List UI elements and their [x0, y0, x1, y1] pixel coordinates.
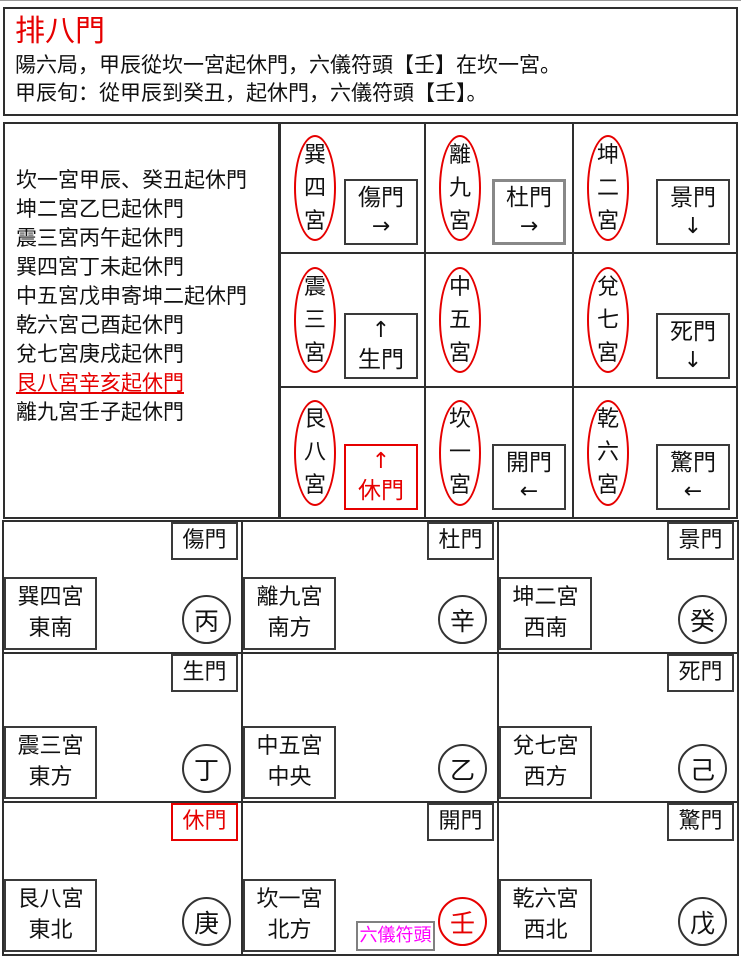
note-line: 乾六宮己酉起休門 — [16, 311, 278, 340]
palace-name: 巽四宮 — [6, 582, 95, 613]
palace-oval: 中五宮 — [439, 267, 481, 373]
palace-tag: 離九宮 南方 — [243, 577, 336, 650]
palace-oval: 乾六宮 — [587, 400, 629, 506]
direction-label: 東方 — [6, 762, 95, 793]
palace-oval: 坤二宮 — [587, 135, 629, 241]
arrow-left-icon: ← — [684, 478, 702, 506]
gate-name: 傷門 — [358, 183, 404, 213]
note-line: 中五宮戊申寄坤二起休門 — [16, 282, 278, 311]
palace-name: 乾六宮 — [501, 884, 590, 915]
palace-name: 艮八宮 — [6, 884, 95, 915]
gate-chart-cell-li9: 離九宮 杜門 → — [426, 124, 574, 254]
stem-circle: 癸 — [678, 595, 727, 644]
direction-label: 西南 — [501, 613, 590, 644]
palace-cell-xun4: 傷門 巽四宮 東南 丙 — [4, 522, 243, 654]
gate-tag: 傷門 — [171, 522, 238, 560]
gate-name: 開門 — [506, 448, 552, 478]
palace-oval: 坎一宮 — [439, 400, 481, 506]
gate-rotation-chart: 巽四宮 傷門 → 離九宮 杜門 → 坤二宮 景門 ↓ — [279, 122, 738, 519]
palace-name: 震三宮 — [303, 271, 327, 370]
page: 排八門 陽六局，甲辰從坎一宮起休門，六儀符頭【壬】在坎一宮。 甲辰旬：從甲辰到癸… — [0, 0, 741, 957]
gate-tag-highlighted: 休門 — [171, 803, 238, 841]
direction-label: 東北 — [6, 915, 95, 946]
palace-name: 兌七宮 — [501, 731, 590, 762]
note-line: 震三宮丙午起休門 — [16, 224, 278, 253]
gate-name: 杜門 — [506, 183, 552, 213]
palace-cell-kan1: 開門 坎一宮 北方 六儀符頭 壬 — [243, 803, 499, 954]
notes-panel: 坎一宮甲辰、癸丑起休門 坤二宮乙巳起休門 震三宮丙午起休門 巽四宮丁未起休門 中… — [3, 122, 280, 519]
gate-chart-cell-dui7: 兌七宮 死門 ↓ — [574, 254, 736, 388]
palace-oval: 震三宮 — [294, 267, 336, 373]
palace-tag: 坤二宮 西南 — [499, 577, 592, 650]
direction-label: 西方 — [501, 762, 590, 793]
gate-box: 景門 ↓ — [656, 179, 730, 245]
header: 排八門 陽六局，甲辰從坎一宮起休門，六儀符頭【壬】在坎一宮。 甲辰旬：從甲辰到癸… — [3, 7, 738, 116]
palace-tag: 巽四宮 東南 — [4, 577, 97, 650]
gate-tag: 景門 — [667, 522, 734, 560]
arrow-down-icon: ↓ — [684, 347, 702, 375]
palace-tag: 震三宮 東方 — [4, 726, 97, 799]
palace-name: 巽四宮 — [303, 139, 327, 238]
palace-name: 震三宮 — [6, 731, 95, 762]
palace-name: 離九宮 — [245, 582, 334, 613]
palace-name: 離九宮 — [448, 139, 472, 238]
gate-name: 休門 — [358, 476, 404, 506]
stem-circle: 丁 — [182, 744, 231, 793]
palace-name: 坤二宮 — [596, 139, 620, 238]
note-line: 兌七宮庚戌起休門 — [16, 340, 278, 369]
palace-name: 坎一宮 — [245, 884, 334, 915]
palace-oval: 巽四宮 — [294, 135, 336, 241]
gate-box-highlighted: ↑ 休門 — [344, 444, 418, 510]
note-line-highlighted: 艮八宮辛亥起休門 — [16, 369, 278, 398]
gate-chart-cell-gen8: 艮八宮 ↑ 休門 — [281, 388, 426, 517]
arrow-down-icon: ↓ — [684, 213, 702, 241]
gate-box: 開門 ← — [492, 444, 566, 510]
note-line: 巽四宮丁未起休門 — [16, 253, 278, 282]
stem-circle-highlighted: 壬 — [438, 897, 487, 946]
palace-name: 中五宮 — [448, 271, 472, 370]
gate-name: 死門 — [670, 317, 716, 347]
palace-tag: 中五宮 中央 — [243, 726, 336, 799]
gate-box: 杜門 → — [492, 179, 566, 245]
palace-cell-qian6: 驚門 乾六宮 西北 戊 — [499, 803, 737, 954]
palace-name: 乾六宮 — [596, 403, 620, 502]
palace-direction-chart: 傷門 巽四宮 東南 丙 杜門 離九宮 南方 辛 景門 坤二宮 西南 癸 生門 — [2, 520, 739, 956]
palace-tag: 兌七宮 西方 — [499, 726, 592, 799]
palace-name: 坎一宮 — [448, 403, 472, 502]
gate-chart-cell-zhong5: 中五宮 — [426, 254, 574, 388]
gate-name: 驚門 — [670, 448, 716, 478]
direction-label: 西北 — [501, 915, 590, 946]
gate-tag: 死門 — [667, 654, 734, 692]
direction-label: 中央 — [245, 762, 334, 793]
gate-tag: 生門 — [171, 654, 238, 692]
arrow-up-icon: ↑ — [372, 317, 390, 345]
gate-chart-cell-xun4: 巽四宮 傷門 → — [281, 124, 426, 254]
palace-cell-li9: 杜門 離九宮 南方 辛 — [243, 522, 499, 654]
gate-chart-cell-qian6: 乾六宮 驚門 ← — [574, 388, 736, 517]
gate-box: 傷門 → — [344, 179, 418, 245]
direction-label: 東南 — [6, 613, 95, 644]
palace-name: 坤二宮 — [501, 582, 590, 613]
gate-box: 驚門 ← — [656, 444, 730, 510]
direction-label: 北方 — [245, 915, 334, 946]
direction-label: 南方 — [245, 613, 334, 644]
arrow-left-icon: ← — [520, 478, 538, 506]
arrow-up-icon: ↑ — [372, 448, 390, 476]
arrow-right-icon: → — [372, 213, 390, 241]
gate-name: 生門 — [358, 345, 404, 375]
stem-circle: 己 — [678, 744, 727, 793]
palace-cell-kun2: 景門 坤二宮 西南 癸 — [499, 522, 737, 654]
palace-name: 艮八宮 — [303, 403, 327, 502]
stem-circle: 丙 — [182, 595, 231, 644]
palace-cell-gen8: 休門 艮八宮 東北 庚 — [4, 803, 243, 954]
gate-name: 景門 — [670, 183, 716, 213]
palace-tag: 乾六宮 西北 — [499, 879, 592, 952]
stem-circle: 辛 — [438, 595, 487, 644]
note-line: 坎一宮甲辰、癸丑起休門 — [16, 166, 278, 195]
palace-oval: 艮八宮 — [294, 400, 336, 506]
gate-chart-cell-kan1: 坎一宮 開門 ← — [426, 388, 574, 517]
stem-circle: 庚 — [182, 897, 231, 946]
stem-circle: 戊 — [678, 897, 727, 946]
gate-chart-cell-kun2: 坤二宮 景門 ↓ — [574, 124, 736, 254]
palace-name: 兌七宮 — [596, 271, 620, 370]
palace-cell-zhong5: 中五宮 中央 乙 — [243, 654, 499, 803]
header-line-1: 陽六局，甲辰從坎一宮起休門，六儀符頭【壬】在坎一宮。 — [15, 51, 726, 79]
palace-tag: 艮八宮 東北 — [4, 879, 97, 952]
gate-box: ↑ 生門 — [344, 313, 418, 379]
gate-chart-cell-zhen3: 震三宮 ↑ 生門 — [281, 254, 426, 388]
palace-cell-zhen3: 生門 震三宮 東方 丁 — [4, 654, 243, 803]
palace-cell-dui7: 死門 兌七宮 西方 己 — [499, 654, 737, 803]
palace-oval: 兌七宮 — [587, 267, 629, 373]
arrow-right-icon: → — [520, 213, 538, 241]
stem-circle: 乙 — [438, 744, 487, 793]
gate-tag: 杜門 — [427, 522, 494, 560]
header-line-2: 甲辰旬：從甲辰到癸丑，起休門，六儀符頭【壬】。 — [15, 79, 726, 107]
note-line: 坤二宮乙巳起休門 — [16, 195, 278, 224]
stem-head-label: 六儀符頭 — [356, 921, 435, 951]
palace-oval: 離九宮 — [439, 135, 481, 241]
page-title: 排八門 — [15, 13, 726, 51]
gate-box: 死門 ↓ — [656, 313, 730, 379]
palace-tag: 坎一宮 北方 — [243, 879, 336, 952]
note-line: 離九宮壬子起休門 — [16, 398, 278, 427]
palace-name: 中五宮 — [245, 731, 334, 762]
gate-tag: 驚門 — [667, 803, 734, 841]
gate-tag: 開門 — [427, 803, 494, 841]
